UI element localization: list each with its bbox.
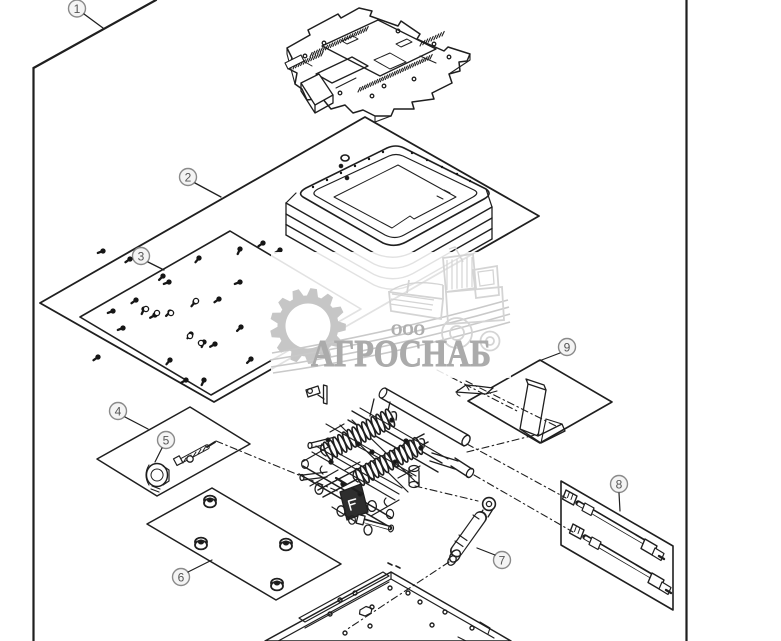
svg-text:3: 3 bbox=[138, 250, 145, 264]
svg-text:5: 5 bbox=[163, 434, 170, 448]
svg-text:6: 6 bbox=[178, 571, 185, 585]
svg-text:7: 7 bbox=[499, 554, 506, 568]
svg-text:1: 1 bbox=[74, 2, 81, 16]
svg-text:4: 4 bbox=[115, 405, 122, 419]
svg-text:9: 9 bbox=[564, 341, 571, 355]
svg-text:АГРОСНАБ: АГРОСНАБ bbox=[311, 333, 491, 375]
svg-text:2: 2 bbox=[185, 171, 192, 185]
svg-text:8: 8 bbox=[616, 478, 623, 492]
